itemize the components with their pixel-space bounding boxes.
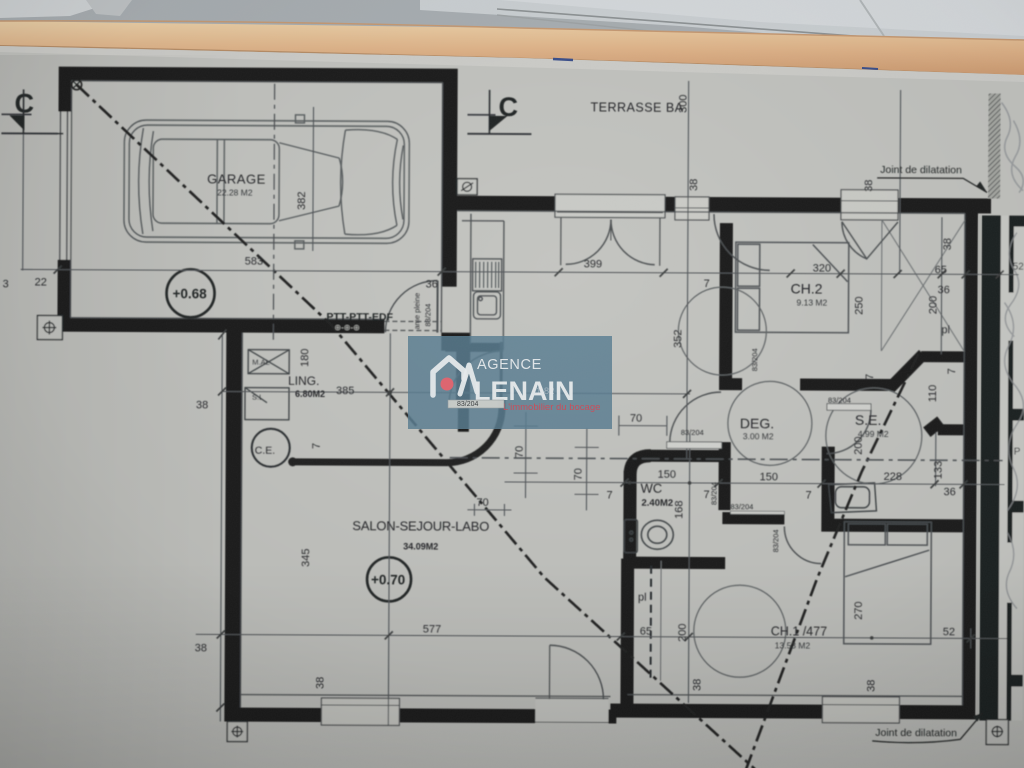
svg-text:2.40M2: 2.40M2: [641, 498, 673, 509]
svg-text:133: 133: [933, 461, 945, 479]
svg-text:7: 7: [606, 489, 612, 501]
svg-text:7: 7: [311, 443, 323, 449]
svg-text:83/204: 83/204: [457, 401, 479, 408]
svg-text:7: 7: [704, 278, 710, 290]
svg-text:250: 250: [853, 296, 865, 314]
svg-text:WC: WC: [641, 481, 663, 496]
svg-text:P: P: [1014, 447, 1021, 458]
svg-text:110: 110: [927, 385, 939, 403]
svg-text:Joint de dilatation: Joint de dilatation: [880, 164, 962, 176]
svg-text:36: 36: [938, 284, 950, 296]
svg-text:65: 65: [935, 264, 947, 276]
svg-text:150: 150: [760, 471, 778, 483]
svg-text:83/204: 83/204: [730, 502, 753, 511]
svg-text:S.L: S.L: [252, 393, 263, 402]
svg-text:200: 200: [927, 296, 939, 314]
svg-text:382: 382: [296, 192, 308, 210]
svg-text:pl: pl: [941, 324, 950, 336]
svg-text:70: 70: [514, 446, 526, 458]
svg-text:320: 320: [813, 263, 831, 275]
svg-text:AGENCE: AGENCE: [477, 357, 542, 373]
svg-text:83/204: 83/204: [423, 304, 432, 327]
svg-text:83/204: 83/204: [709, 482, 718, 505]
svg-text:S.E.: S.E.: [855, 412, 882, 428]
svg-text:PTT-PTT-EDF: PTT-PTT-EDF: [326, 311, 393, 323]
svg-text:CH.2: CH.2: [791, 280, 823, 296]
svg-text:34.09M2: 34.09M2: [403, 541, 438, 551]
svg-text:TERRASSE BA: TERRASSE BA: [590, 100, 683, 114]
svg-text:⊕-⊕-⊕: ⊕-⊕-⊕: [334, 323, 359, 332]
svg-text:70: 70: [630, 413, 642, 425]
svg-text:SALON-SEJOUR-LABO: SALON-SEJOUR-LABO: [352, 518, 489, 534]
svg-text:200: 200: [853, 436, 865, 454]
svg-text:385: 385: [336, 385, 354, 397]
svg-text:38: 38: [863, 180, 875, 192]
svg-text:38: 38: [942, 238, 954, 250]
svg-text:M.AL: M.AL: [252, 358, 270, 367]
svg-text:7: 7: [805, 490, 811, 502]
svg-text:9.13 M2: 9.13 M2: [796, 297, 827, 307]
svg-text:C.E.: C.E.: [255, 445, 275, 457]
svg-text:70: 70: [573, 468, 585, 480]
svg-text:7: 7: [864, 374, 876, 380]
svg-text:180: 180: [299, 349, 311, 367]
svg-text:168: 168: [673, 500, 685, 518]
svg-text:150: 150: [658, 469, 676, 481]
svg-text:352: 352: [672, 329, 684, 347]
svg-text:L'immobilier du bocage: L'immobilier du bocage: [503, 402, 600, 413]
svg-text:DEG.: DEG.: [740, 415, 774, 431]
svg-text:36: 36: [426, 279, 438, 291]
svg-text:83/204: 83/204: [771, 529, 780, 552]
svg-text:83/204: 83/204: [681, 428, 704, 437]
svg-text:6.80M2: 6.80M2: [295, 389, 325, 399]
svg-text:36: 36: [943, 486, 955, 498]
svg-text:300: 300: [678, 95, 690, 113]
svg-text:7: 7: [946, 368, 958, 374]
svg-text:LING.: LING.: [288, 374, 319, 388]
svg-text:399: 399: [584, 258, 602, 270]
svg-text:3.00 M2: 3.00 M2: [743, 431, 774, 441]
svg-text:83/204: 83/204: [750, 348, 759, 371]
svg-text:228: 228: [884, 471, 902, 483]
svg-text:38: 38: [688, 179, 700, 191]
svg-text:70: 70: [476, 497, 488, 509]
svg-text:ame pleine: ame pleine: [412, 293, 421, 330]
